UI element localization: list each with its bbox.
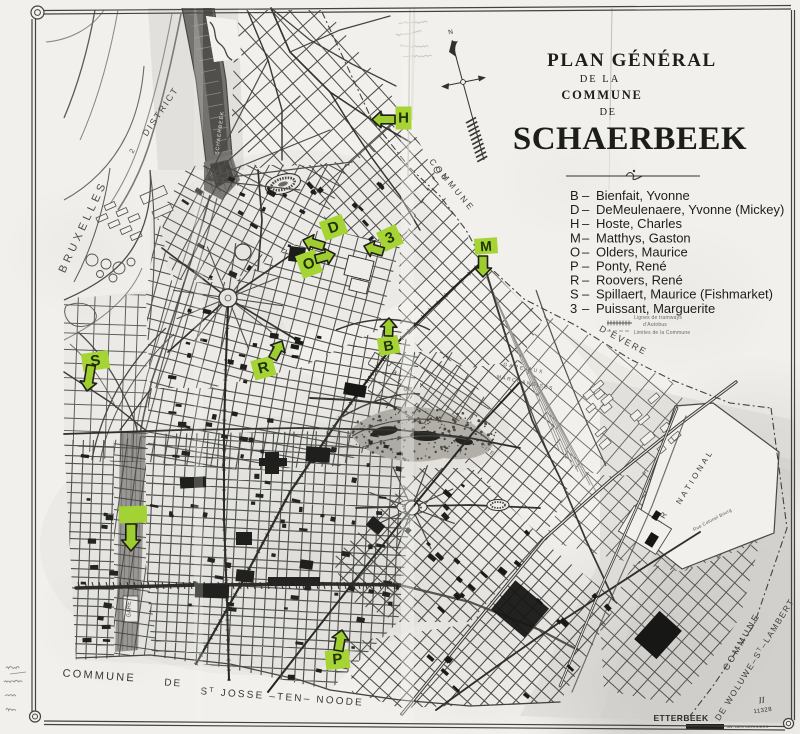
svg-text:Roovers, René: Roovers, René <box>596 273 683 288</box>
svg-text:–: – <box>582 230 590 245</box>
svg-text:–: – <box>582 301 590 316</box>
svg-text:H: H <box>570 216 579 231</box>
svg-text:Hoste, Charles: Hoste, Charles <box>596 216 682 231</box>
svg-text:Puissant, Marguerite: Puissant, Marguerite <box>596 301 715 316</box>
svg-text:DE LA: DE LA <box>580 74 621 85</box>
svg-text:–: – <box>582 188 590 203</box>
svg-text:Lignes de tramways: Lignes de tramways <box>634 315 682 321</box>
svg-text:Bienfait, Yvonne: Bienfait, Yvonne <box>596 188 690 203</box>
svg-text:S: S <box>570 287 579 302</box>
svg-text:–: – <box>582 287 590 302</box>
svg-text:d’Autobus: d’Autobus <box>643 322 667 328</box>
svg-text:COMMUNE: COMMUNE <box>561 88 642 102</box>
svg-text:DE: DE <box>600 107 617 118</box>
svg-text:–: – <box>582 216 590 231</box>
svg-text:M: M <box>570 230 581 245</box>
svg-text:ETTERBEEK: ETTERBEEK <box>653 713 709 723</box>
svg-text:–: – <box>582 259 590 274</box>
svg-text:DeMeulenaere, Yvonne (Mickey): DeMeulenaere, Yvonne (Mickey) <box>596 202 784 217</box>
svg-text:–: – <box>582 202 590 217</box>
svg-text:3: 3 <box>570 301 577 316</box>
svg-text:R: R <box>570 273 579 288</box>
svg-text:–: – <box>582 273 590 288</box>
svg-text:M: M <box>480 238 493 255</box>
svg-text:B: B <box>570 188 579 203</box>
svg-text:SCHAERBEEK: SCHAERBEEK <box>513 121 747 157</box>
svg-text:–: – <box>582 244 590 259</box>
svg-text:PLAN GÉNÉRAL: PLAN GÉNÉRAL <box>547 49 717 71</box>
svg-text:H: H <box>398 110 409 127</box>
svg-text:Limites de la Commune: Limites de la Commune <box>634 330 691 336</box>
svg-text:Matthys, Gaston: Matthys, Gaston <box>596 230 691 245</box>
svg-text:P: P <box>570 259 579 274</box>
svg-text:D: D <box>570 202 579 217</box>
svg-text:DE: DE <box>164 677 183 689</box>
svg-text:Spillaert, Maurice (Fishmarket: Spillaert, Maurice (Fishmarket) <box>596 287 773 302</box>
svg-text:P: P <box>332 651 343 669</box>
svg-text:Ponty, René: Ponty, René <box>596 259 667 274</box>
svg-text:Olders, Maurice: Olders, Maurice <box>596 244 688 259</box>
svg-text:O: O <box>570 244 580 259</box>
